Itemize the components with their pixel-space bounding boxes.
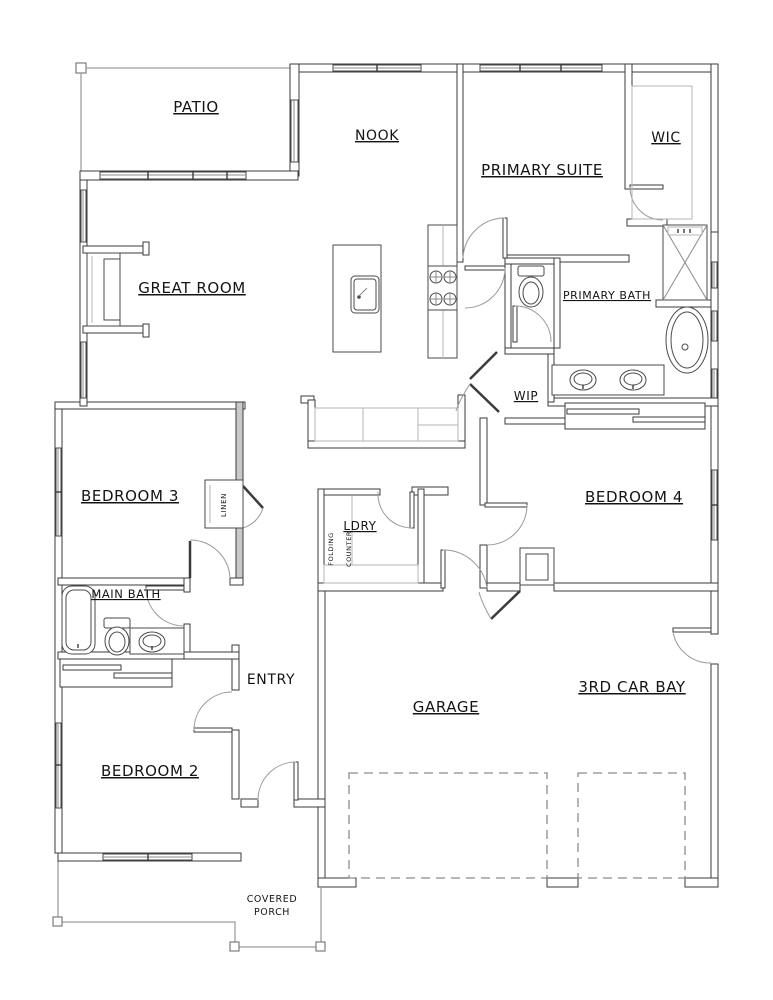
room-label-entry: ENTRY xyxy=(247,672,295,688)
wip-door xyxy=(470,384,499,412)
freestanding-tub-icon xyxy=(666,307,708,373)
room-label-laundry: LDRY xyxy=(343,519,376,533)
shower-icon xyxy=(663,225,707,300)
windows xyxy=(55,64,718,861)
main-bath-tub-icon xyxy=(62,586,95,654)
laundry-folding-counter xyxy=(324,495,418,583)
bedroom4-closet xyxy=(565,403,705,429)
garage-hall-door xyxy=(441,550,445,588)
room-label-bedroom4: BEDROOM 4 xyxy=(585,488,683,506)
bedroom2-door xyxy=(194,728,232,732)
room-labels: PATIO NOOK PRIMARY SUITE WIC GREAT ROOM … xyxy=(81,98,686,918)
room-label-nook: NOOK xyxy=(355,128,399,144)
garage-rear-door xyxy=(673,628,711,632)
main-bath-toilet-icon xyxy=(104,618,130,655)
room-label-wip: WIP xyxy=(514,389,538,403)
porch-post xyxy=(53,917,62,926)
room-label-bedroom3: BEDROOM 3 xyxy=(81,487,179,505)
main-bath-vanity xyxy=(130,628,184,654)
interior-walls xyxy=(58,64,718,659)
double-vanity xyxy=(552,365,664,395)
covered-porch-outline xyxy=(53,861,325,951)
wic-door xyxy=(630,185,663,189)
water-closet-toilet-icon xyxy=(518,266,544,307)
range-icon xyxy=(428,266,457,310)
floor-plan-drawing: PATIO NOOK PRIMARY SUITE WIC GREAT ROOM … xyxy=(0,0,773,1000)
garage-door-dashed xyxy=(349,773,547,878)
room-label-garage: GARAGE xyxy=(413,698,479,716)
label-porch: PORCH xyxy=(254,907,290,918)
room-label-bedroom2: BEDROOM 2 xyxy=(101,762,199,780)
primary-suite-door xyxy=(503,218,507,258)
room-label-great-room: GREAT ROOM xyxy=(138,279,246,297)
wip-angled-wall xyxy=(470,352,497,379)
patio-outline xyxy=(76,63,290,171)
room-label-wic: WIC xyxy=(651,130,681,146)
linen-door xyxy=(243,486,263,508)
utility-closet-door xyxy=(491,591,520,619)
room-label-primary-suite: PRIMARY SUITE xyxy=(481,161,603,179)
bedroom3-door-arc xyxy=(190,540,230,578)
bedroom4-door xyxy=(485,503,527,507)
label-covered: COVERED xyxy=(247,894,298,905)
porch-post xyxy=(230,942,239,951)
label-counter: COUNTER xyxy=(345,531,353,567)
porch-post xyxy=(316,942,325,951)
laundry-door xyxy=(410,492,414,528)
kitchen-island xyxy=(333,245,381,352)
garage-door-tracks xyxy=(349,773,685,878)
room-label-patio: PATIO xyxy=(173,98,219,116)
floor-plan-sheet: PATIO NOOK PRIMARY SUITE WIC GREAT ROOM … xyxy=(0,0,773,1000)
patio-post xyxy=(76,63,86,73)
front-door xyxy=(294,762,298,800)
room-label-primary-bath: PRIMARY BATH xyxy=(563,289,651,302)
label-linen: LINEN xyxy=(220,493,228,517)
label-folding: FOLDING xyxy=(327,532,335,566)
bedroom2-closet xyxy=(60,659,172,687)
kitchen-hall-door xyxy=(465,266,505,270)
room-label-third-car-bay: 3RD CAR BAY xyxy=(578,678,686,696)
garage-door-dashed xyxy=(578,773,685,878)
utility-closet xyxy=(520,548,554,585)
wic-shelves xyxy=(632,86,692,219)
media-counter xyxy=(315,408,458,441)
water-closet-door xyxy=(513,306,517,342)
room-label-main-bath: MAIN BATH xyxy=(91,587,160,601)
